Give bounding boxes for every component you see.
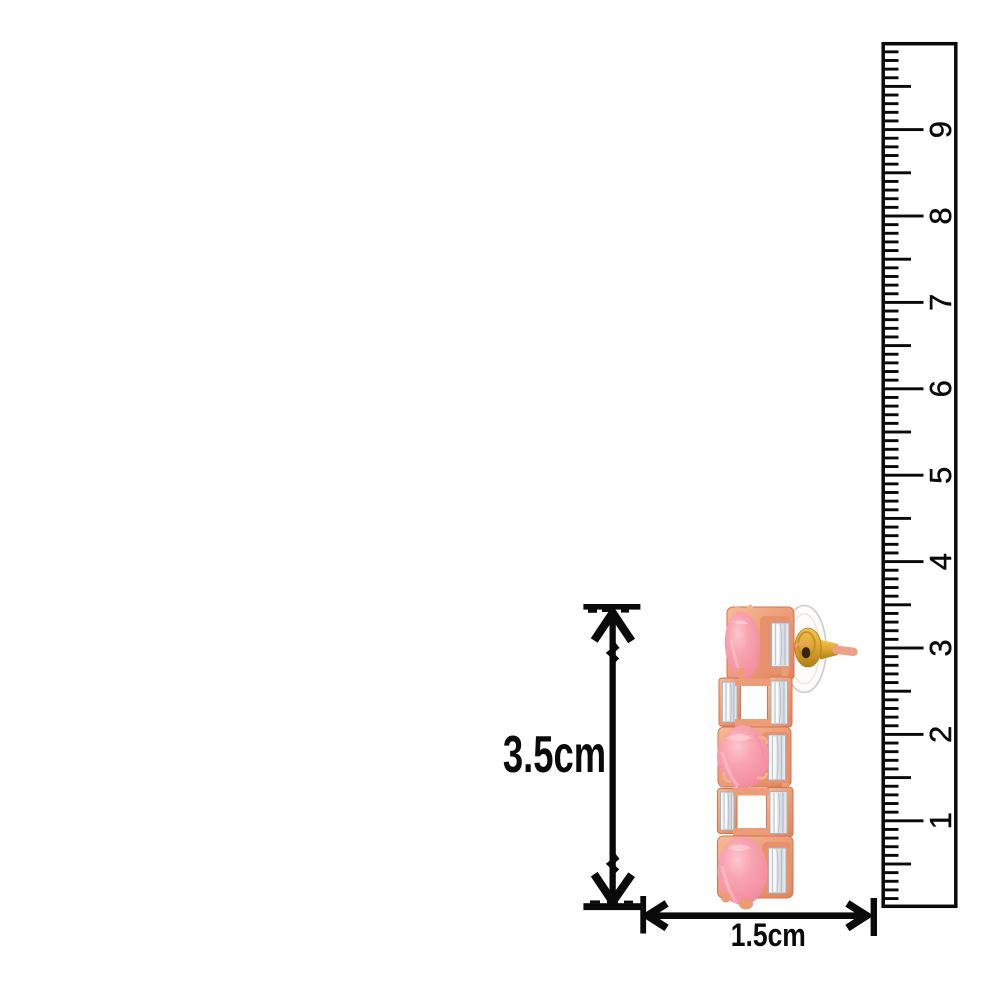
svg-text:4: 4	[923, 553, 958, 570]
svg-text:3.5cm: 3.5cm	[503, 725, 606, 784]
svg-text:5: 5	[923, 467, 958, 484]
svg-text:1: 1	[923, 812, 958, 829]
svg-text:3: 3	[923, 639, 958, 656]
svg-text:6: 6	[923, 380, 958, 397]
svg-text:2: 2	[923, 726, 958, 743]
svg-text:8: 8	[923, 207, 958, 224]
svg-text:7: 7	[923, 294, 958, 311]
svg-text:1.5cm: 1.5cm	[731, 917, 806, 953]
svg-text:9: 9	[923, 121, 958, 138]
